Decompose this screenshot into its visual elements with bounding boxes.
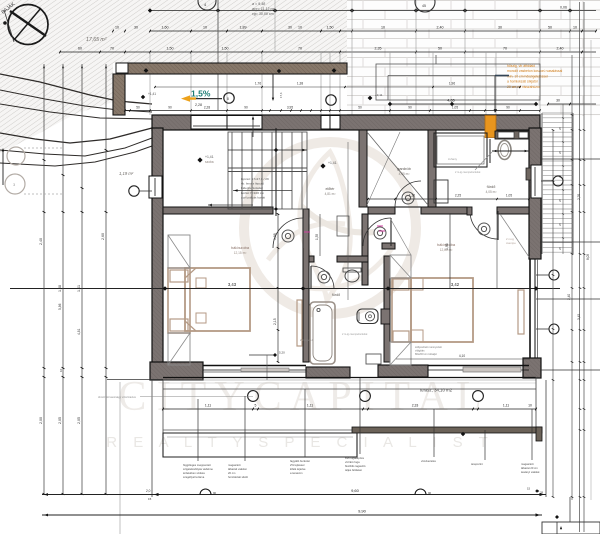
svg-text:3,42: 3,42: [451, 282, 460, 287]
svg-text:1,35: 1,35: [315, 234, 319, 240]
svg-text:10: 10: [528, 404, 532, 408]
svg-text:30: 30: [556, 99, 560, 103]
svg-text:magasított: magasított: [228, 463, 241, 467]
svg-text:2,40: 2,40: [557, 47, 564, 51]
svg-text:2,0: 2,0: [146, 489, 151, 493]
svg-text:lépcső: 17x17,6 / 29: lépcső: 17x17,6 / 29: [241, 177, 269, 181]
svg-text:15: 15: [148, 497, 152, 501]
svg-text:acél pálcás korlát: acél pálcás korlát: [241, 195, 265, 199]
svg-text:17,6: 17,6: [279, 92, 283, 98]
svg-text:90: 90: [213, 491, 217, 495]
svg-text:cg= 30,00 cm: cg= 30,00 cm: [252, 12, 274, 16]
svg-text:2,40: 2,40: [437, 26, 444, 30]
svg-text:30: 30: [134, 26, 138, 30]
svg-text:2,15: 2,15: [273, 318, 277, 325]
svg-text:1,58: 1,58: [58, 285, 62, 292]
svg-text:a homlokzati síkjától: a homlokzati síkjától: [507, 80, 538, 84]
svg-text:90: 90: [244, 106, 248, 110]
svg-text:9,90: 9,90: [358, 509, 367, 514]
svg-text:zuhany: zuhany: [448, 157, 458, 161]
svg-text:8: 8: [227, 97, 229, 101]
svg-text:50: 50: [548, 26, 552, 30]
svg-text:zárt fugaképzés: zárt fugaképzés: [345, 456, 365, 460]
svg-text:2 m-ig csempeburkolat: 2 m-ig csempeburkolat: [342, 333, 368, 336]
svg-text:2,35: 2,35: [375, 47, 382, 51]
svg-text:10: 10: [573, 26, 577, 30]
svg-text:2,05: 2,05: [58, 417, 62, 424]
svg-text:vízzáró fuga: vízzáró fuga: [345, 460, 360, 464]
svg-text:monolit vasbeton koszorú vasal: monolit vasbeton koszorú vasalással: [507, 69, 562, 73]
svg-text:flexibilis ragasztó: flexibilis ragasztó: [345, 464, 366, 468]
svg-text:1,11: 1,11: [503, 404, 509, 408]
svg-text:lábazat 20 cm: lábazat 20 cm: [521, 466, 538, 470]
svg-text:min. 10 cm hőszigeteléssel: min. 10 cm hőszigeteléssel: [507, 74, 548, 78]
svg-text:csempe: csempe: [506, 241, 516, 245]
svg-text:+1,41: +1,41: [148, 92, 156, 96]
svg-text:2,05: 2,05: [77, 417, 81, 424]
svg-text:70: 70: [503, 47, 507, 51]
svg-text:3,45: 3,45: [577, 314, 581, 320]
svg-text:1,19 m²: 1,19 m²: [119, 171, 134, 176]
svg-text:50: 50: [438, 47, 442, 51]
svg-text:1,98: 1,98: [273, 233, 277, 240]
svg-text:szoba: szoba: [205, 160, 214, 164]
svg-text:1,60: 1,60: [162, 26, 169, 30]
svg-text:2,33: 2,33: [412, 404, 419, 408]
svg-text:hidegburkolattal: hidegburkolattal: [241, 186, 263, 190]
svg-text:0,06: 0,06: [560, 6, 567, 10]
svg-text:2 m-ig csempeburkolat: 2 m-ig csempeburkolat: [455, 171, 481, 174]
svg-text:1,10: 1,10: [409, 194, 415, 198]
svg-text:1,5%: 1,5%: [191, 89, 211, 99]
svg-text:1,11: 1,11: [307, 404, 313, 408]
svg-text:12,15 m²: 12,15 m²: [234, 251, 247, 255]
svg-text:10: 10: [59, 368, 63, 372]
svg-text:4,05 m²: 4,05 m²: [486, 190, 497, 194]
svg-text:+3,11: +3,11: [375, 93, 383, 97]
svg-text:30: 30: [498, 26, 502, 30]
svg-text:fagyálló burkolat: fagyálló burkolat: [290, 459, 310, 463]
svg-text:1,50: 1,50: [327, 26, 334, 30]
svg-text:5,20: 5,20: [279, 351, 285, 355]
svg-text:4,10: 4,10: [459, 354, 465, 358]
svg-text:4,81 m²: 4,81 m²: [325, 192, 336, 196]
svg-text:20 cm: 20 cm: [228, 471, 236, 475]
svg-text:3,43: 3,43: [228, 282, 237, 287]
svg-text:1,50: 1,50: [222, 47, 229, 51]
svg-text:teljes felületen: teljes felületen: [345, 468, 363, 472]
svg-text:hálószoba: hálószoba: [231, 245, 250, 250]
svg-text:15: 15: [536, 489, 540, 493]
svg-text:2,76: 2,76: [577, 194, 581, 200]
svg-text:17,65 m²: 17,65 m²: [86, 37, 107, 43]
svg-text:30: 30: [288, 26, 292, 30]
svg-text:vb. lemez lépcső: vb. lemez lépcső: [241, 182, 264, 186]
svg-text:45: 45: [422, 4, 426, 8]
svg-text:függőleges cseppentett: függőleges cseppentett: [183, 463, 211, 467]
svg-text:5,86: 5,86: [58, 303, 62, 310]
svg-text:60: 60: [78, 47, 82, 51]
svg-text:10: 10: [115, 26, 119, 30]
svg-text:90: 90: [408, 106, 412, 110]
svg-text:fürdő: fürdő: [487, 185, 496, 189]
svg-text:2% lejtéssel: 2% lejtéssel: [290, 463, 305, 467]
svg-text:R E A L T Y S P E C I A L I: R E A L T Y S P E C I A L I S T: [106, 434, 494, 451]
svg-text:2,00: 2,00: [39, 417, 43, 424]
svg-text:ásványi vakolat: ásványi vakolat: [521, 470, 540, 474]
svg-text:10: 10: [203, 26, 207, 30]
svg-text:terasz, 34,10 m2: terasz, 34,10 m2: [420, 388, 453, 393]
svg-text:előtér: előtér: [326, 187, 336, 191]
svg-text:+1,41: +1,41: [205, 155, 214, 159]
svg-text:1,11: 1,11: [205, 404, 211, 408]
svg-text:1,41: 1,41: [77, 285, 81, 292]
svg-text:szegéllyel lezárva: szegéllyel lezárva: [183, 475, 205, 479]
svg-text:süllyesztett mennyezeti: süllyesztett mennyezeti: [415, 345, 442, 349]
svg-text:szigetelésfolyás védelme: szigetelésfolyás védelme: [183, 467, 213, 471]
svg-text:fürdő: fürdő: [332, 293, 340, 297]
svg-text:90: 90: [506, 106, 510, 110]
svg-text:1,05: 1,05: [452, 106, 458, 110]
svg-text:10: 10: [298, 26, 302, 30]
svg-text:homlokzati síktól: homlokzati síktól: [228, 475, 248, 479]
svg-text:90: 90: [168, 106, 172, 110]
svg-text:9,60: 9,60: [351, 488, 360, 493]
svg-text:lábazati vakolat: lábazati vakolat: [228, 467, 247, 471]
svg-text:acc= 11,13 cm: acc= 11,13 cm: [252, 7, 275, 11]
svg-text:2,60: 2,60: [101, 233, 105, 240]
svg-text:2,25: 2,25: [455, 194, 461, 198]
svg-text:vízelvezetés: vízelvezetés: [421, 459, 436, 463]
svg-text:a teraszon: a teraszon: [290, 471, 303, 475]
svg-text:8,05: 8,05: [586, 254, 590, 260]
svg-text:1,50: 1,50: [167, 47, 174, 51]
svg-text:3,95: 3,95: [287, 106, 293, 110]
svg-text:4,05 m²: 4,05 m²: [399, 172, 410, 176]
svg-text:90: 90: [428, 491, 432, 495]
svg-text:10: 10: [381, 26, 385, 30]
svg-text:C I T Y C A P I T A L: C I T Y C A P I T A L: [118, 374, 481, 420]
svg-text:korlát: h=100 cm: korlát: h=100 cm: [241, 191, 264, 195]
svg-text:világítás: világítás: [415, 349, 425, 353]
svg-text:magasított: magasított: [521, 462, 534, 466]
svg-text:1,05: 1,05: [506, 194, 512, 198]
svg-text:1,96: 1,96: [449, 82, 455, 86]
svg-text:50: 50: [358, 106, 362, 110]
svg-text:+1,41: +1,41: [328, 161, 337, 165]
svg-text:1,89: 1,89: [240, 26, 247, 30]
svg-text:1,76: 1,76: [255, 82, 261, 86]
svg-text:1,96: 1,96: [445, 243, 449, 250]
svg-text:2,28: 2,28: [195, 103, 202, 107]
svg-text:70: 70: [298, 47, 302, 51]
svg-text:2,28: 2,28: [204, 106, 210, 110]
svg-text:tömörített kavicságy vízszinte: tömörített kavicságy vízszintezve: [98, 395, 136, 399]
svg-text:5: 5: [255, 404, 257, 408]
svg-text:28: 28: [540, 491, 544, 495]
svg-text:4,81: 4,81: [77, 328, 81, 335]
svg-text:a = 9,48: a = 9,48: [252, 2, 265, 6]
svg-text:70: 70: [110, 47, 114, 51]
svg-text:terepszint: terepszint: [471, 462, 483, 466]
svg-text:4,65: 4,65: [447, 99, 454, 103]
svg-text:hőszig. vb áthidaló: hőszig. vb áthidaló: [507, 64, 535, 68]
svg-text:15: 15: [527, 487, 531, 491]
svg-text:1,38: 1,38: [297, 82, 303, 86]
svg-text:érdekében szükés: érdekében szükés: [183, 471, 205, 475]
svg-text:50: 50: [136, 106, 140, 110]
svg-text:80x200 cm tolóajtó: 80x200 cm tolóajtó: [415, 352, 437, 356]
svg-text:kifelé lejtetve: kifelé lejtetve: [290, 467, 306, 471]
svg-text:2,40: 2,40: [39, 238, 43, 245]
